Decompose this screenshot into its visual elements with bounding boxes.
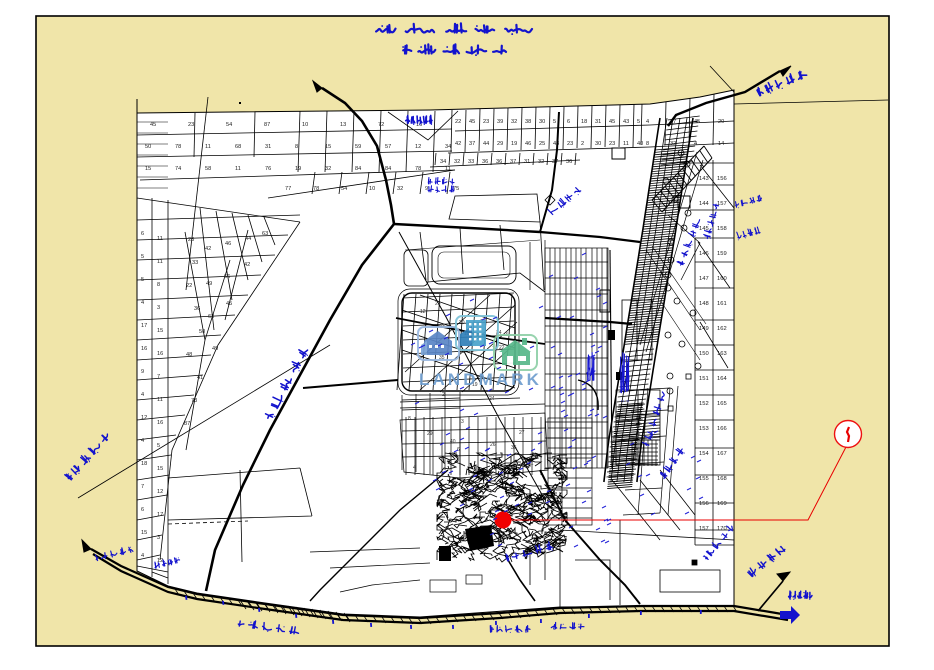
svg-text:144: 144 [699,201,709,207]
svg-text:29: 29 [427,431,433,437]
svg-text:73: 73 [191,398,197,404]
svg-text:50: 50 [145,144,151,150]
svg-text:4: 4 [646,119,649,125]
svg-text:34: 34 [440,159,446,165]
svg-text:15: 15 [157,328,163,334]
svg-text:43: 43 [623,119,629,125]
svg-text:168: 168 [717,476,727,482]
svg-text:11: 11 [205,144,211,150]
svg-text:45: 45 [150,122,156,128]
svg-text:50: 50 [199,329,205,335]
svg-text:63: 63 [208,314,214,320]
svg-text:31: 31 [524,159,530,165]
svg-text:11: 11 [157,236,163,242]
svg-text:49: 49 [206,281,212,287]
svg-text:36: 36 [496,159,502,165]
svg-text:34: 34 [445,144,451,150]
svg-text:170: 170 [717,526,727,532]
svg-text:23: 23 [483,119,489,125]
svg-text:23: 23 [609,141,615,147]
svg-text:32: 32 [454,159,460,165]
svg-text:38: 38 [525,119,531,125]
svg-text:45: 45 [226,301,232,307]
svg-text:159: 159 [717,251,727,257]
svg-text:26: 26 [435,301,441,307]
svg-text:23: 23 [188,122,194,128]
svg-text:14: 14 [718,141,724,147]
svg-text:87: 87 [184,421,190,427]
svg-text:164: 164 [717,376,727,382]
svg-text:12: 12 [141,415,147,421]
svg-text:11: 11 [157,397,163,403]
svg-text:8: 8 [295,144,298,150]
svg-text:46: 46 [525,141,531,147]
svg-text:40: 40 [637,141,643,147]
svg-text:44: 44 [483,141,489,147]
svg-text:3: 3 [157,305,160,311]
svg-text:157: 157 [699,526,709,532]
svg-text:41: 41 [197,375,203,381]
svg-text:12: 12 [420,309,426,315]
svg-text:5: 5 [141,254,144,260]
svg-text:151: 151 [699,376,709,382]
svg-text:3: 3 [157,535,160,541]
svg-text:12: 12 [415,144,421,150]
svg-text:4: 4 [141,300,144,306]
svg-text:16: 16 [157,420,163,426]
svg-text:16: 16 [157,351,163,357]
svg-text:57: 57 [385,144,391,150]
svg-text:36: 36 [511,445,517,451]
svg-text:156: 156 [717,176,727,182]
svg-text:68: 68 [235,144,241,150]
svg-text:6: 6 [141,231,144,237]
svg-text:36: 36 [566,159,572,165]
svg-text:25: 25 [539,141,545,147]
svg-text:8: 8 [408,416,411,422]
svg-text:5: 5 [637,119,640,125]
svg-text:44: 44 [245,236,251,242]
svg-text:152: 152 [699,401,709,407]
svg-text:22: 22 [455,119,461,125]
svg-text:59: 59 [355,144,361,150]
svg-text:32: 32 [325,166,331,172]
svg-text:11: 11 [445,166,451,172]
svg-text:12: 12 [157,489,163,495]
svg-text:147: 147 [699,276,709,282]
svg-text:77: 77 [285,186,291,192]
svg-text:72: 72 [378,122,384,128]
svg-text:15: 15 [141,530,147,536]
svg-text:16: 16 [141,346,147,352]
svg-text:8: 8 [646,141,649,147]
svg-text:30: 30 [539,119,545,125]
svg-text:3: 3 [461,419,464,425]
svg-text:9: 9 [141,369,144,375]
svg-text:29: 29 [497,141,503,147]
svg-text:45: 45 [694,119,700,125]
svg-text:154: 154 [699,451,709,457]
svg-text:158: 158 [717,226,727,232]
svg-text:17: 17 [157,512,163,518]
svg-text:149: 149 [699,326,709,332]
svg-text:2: 2 [581,141,584,147]
svg-text:87: 87 [264,122,270,128]
svg-text:150: 150 [699,351,709,357]
svg-text:48: 48 [186,352,192,358]
svg-text:LANDMARK: LANDMARK [419,370,542,389]
svg-text:54: 54 [341,186,347,192]
svg-text:167: 167 [717,451,727,457]
svg-text:30: 30 [595,141,601,147]
svg-text:37: 37 [510,159,516,165]
svg-text:32: 32 [538,159,544,165]
svg-text:10: 10 [302,122,308,128]
svg-text:7: 7 [141,484,144,490]
svg-text:10: 10 [369,186,375,192]
svg-text:11: 11 [235,166,241,172]
svg-text:15: 15 [145,166,151,172]
svg-text:161: 161 [717,301,727,307]
svg-text:19: 19 [511,141,517,147]
svg-text:19: 19 [295,166,301,172]
svg-text:7: 7 [157,374,160,380]
svg-text:39: 39 [497,119,503,125]
svg-text:32: 32 [511,119,517,125]
svg-text:78: 78 [415,166,421,172]
svg-text:5: 5 [141,277,144,283]
svg-text:42: 42 [244,262,250,268]
svg-text:162: 162 [717,326,727,332]
svg-text:49: 49 [212,346,218,352]
svg-text:66: 66 [224,274,230,280]
svg-text:84: 84 [355,166,361,172]
svg-text:165: 165 [717,401,727,407]
svg-text:36: 36 [482,159,488,165]
svg-text:26: 26 [490,442,496,448]
svg-text:20: 20 [459,320,465,326]
svg-text:2: 2 [442,392,445,398]
svg-text:11: 11 [157,259,163,265]
svg-text:15: 15 [325,144,331,150]
svg-text:6: 6 [567,119,570,125]
svg-text:4: 4 [413,465,416,471]
svg-text:54: 54 [226,122,232,128]
svg-text:24: 24 [489,396,495,402]
svg-text:11: 11 [623,141,629,147]
svg-text:23: 23 [567,141,573,147]
svg-text:4: 4 [141,392,144,398]
svg-text:146: 146 [699,251,709,257]
svg-text:31: 31 [595,119,601,125]
svg-text:4: 4 [141,438,144,444]
svg-text:33: 33 [468,159,474,165]
svg-text:37: 37 [469,141,475,147]
svg-text:143: 143 [699,176,709,182]
svg-text:78: 78 [175,144,181,150]
svg-text:45: 45 [609,119,615,125]
svg-text:155: 155 [699,476,709,482]
svg-text:33: 33 [192,260,198,266]
svg-text:20: 20 [718,119,724,125]
svg-text:166: 166 [717,426,727,432]
svg-text:18: 18 [141,461,147,467]
svg-text:4: 4 [141,553,144,559]
svg-text:9: 9 [425,186,428,192]
svg-text:13: 13 [340,122,346,128]
svg-text:156: 156 [699,501,709,507]
svg-text:36: 36 [194,306,200,312]
svg-text:58: 58 [205,166,211,172]
svg-text:32: 32 [397,186,403,192]
svg-text:40: 40 [450,439,456,445]
svg-text:74: 74 [175,166,181,172]
svg-text:27: 27 [519,430,525,436]
svg-text:8: 8 [157,282,160,288]
svg-text:160: 160 [717,276,727,282]
svg-text:5: 5 [553,119,556,125]
svg-text:18: 18 [581,119,587,125]
svg-text:42: 42 [205,246,211,252]
svg-text:78: 78 [313,186,319,192]
svg-text:31: 31 [265,144,271,150]
svg-text:6: 6 [141,507,144,513]
svg-text:63: 63 [262,231,268,237]
svg-text:17: 17 [141,323,147,329]
svg-text:169: 169 [717,501,727,507]
svg-text:42: 42 [455,141,461,147]
svg-text:15: 15 [157,466,163,472]
svg-text:46: 46 [225,241,231,247]
svg-text:153: 153 [699,426,709,432]
svg-text:163: 163 [717,351,727,357]
svg-text:76: 76 [265,166,271,172]
svg-text:148: 148 [699,301,709,307]
svg-text:45: 45 [469,119,475,125]
svg-text:84: 84 [385,166,391,172]
